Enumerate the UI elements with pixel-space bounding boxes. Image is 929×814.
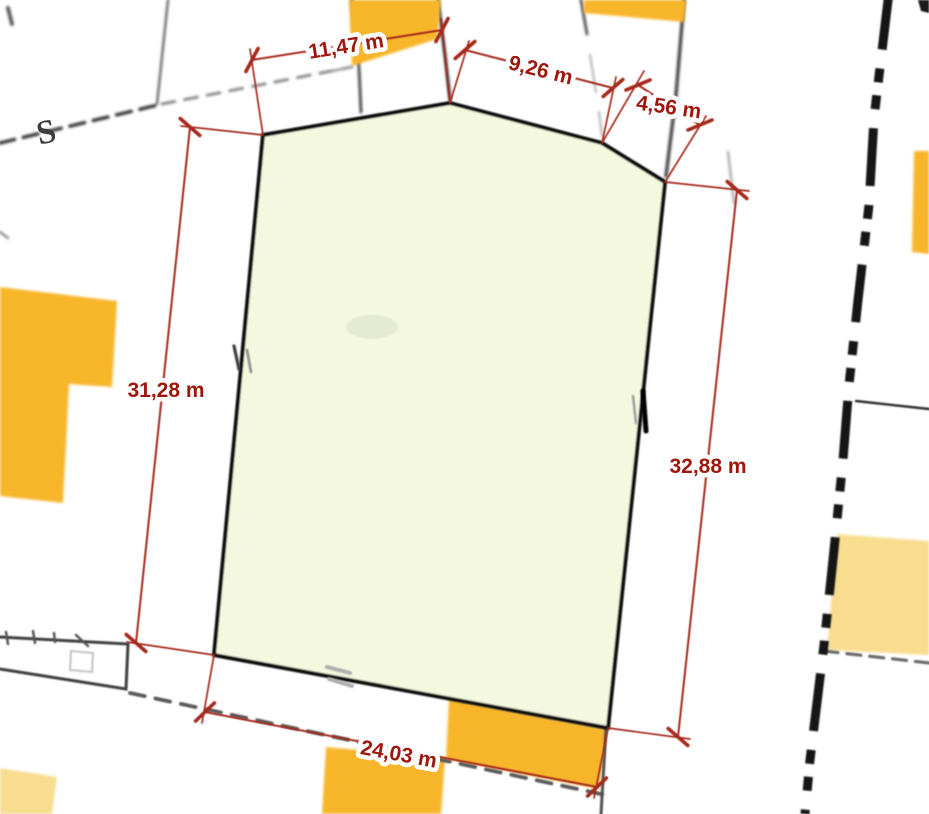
highlighted-parcel[interactable] (214, 103, 665, 728)
building-right-pale (827, 534, 929, 655)
dimension-label-top-right-long: 9,26 m (506, 51, 575, 89)
building-right-edge (912, 151, 929, 254)
boundary-s-marker: S (33, 112, 59, 152)
building-left-l-shape (0, 287, 117, 503)
map-canvas[interactable]: S (0, 0, 929, 814)
building-top-right (584, 0, 686, 22)
building-bottom-left-pale (0, 768, 57, 814)
cadastral-map[interactable]: S (0, 0, 929, 814)
corner-mark (918, 0, 929, 13)
dimension-label-right: 32,88 m (669, 455, 746, 478)
dimension-label-top-right-short: 4,56 m (635, 92, 703, 124)
dimension-label-left: 31,28 m (127, 379, 204, 402)
dash-dot-boundary-line (805, 0, 889, 814)
